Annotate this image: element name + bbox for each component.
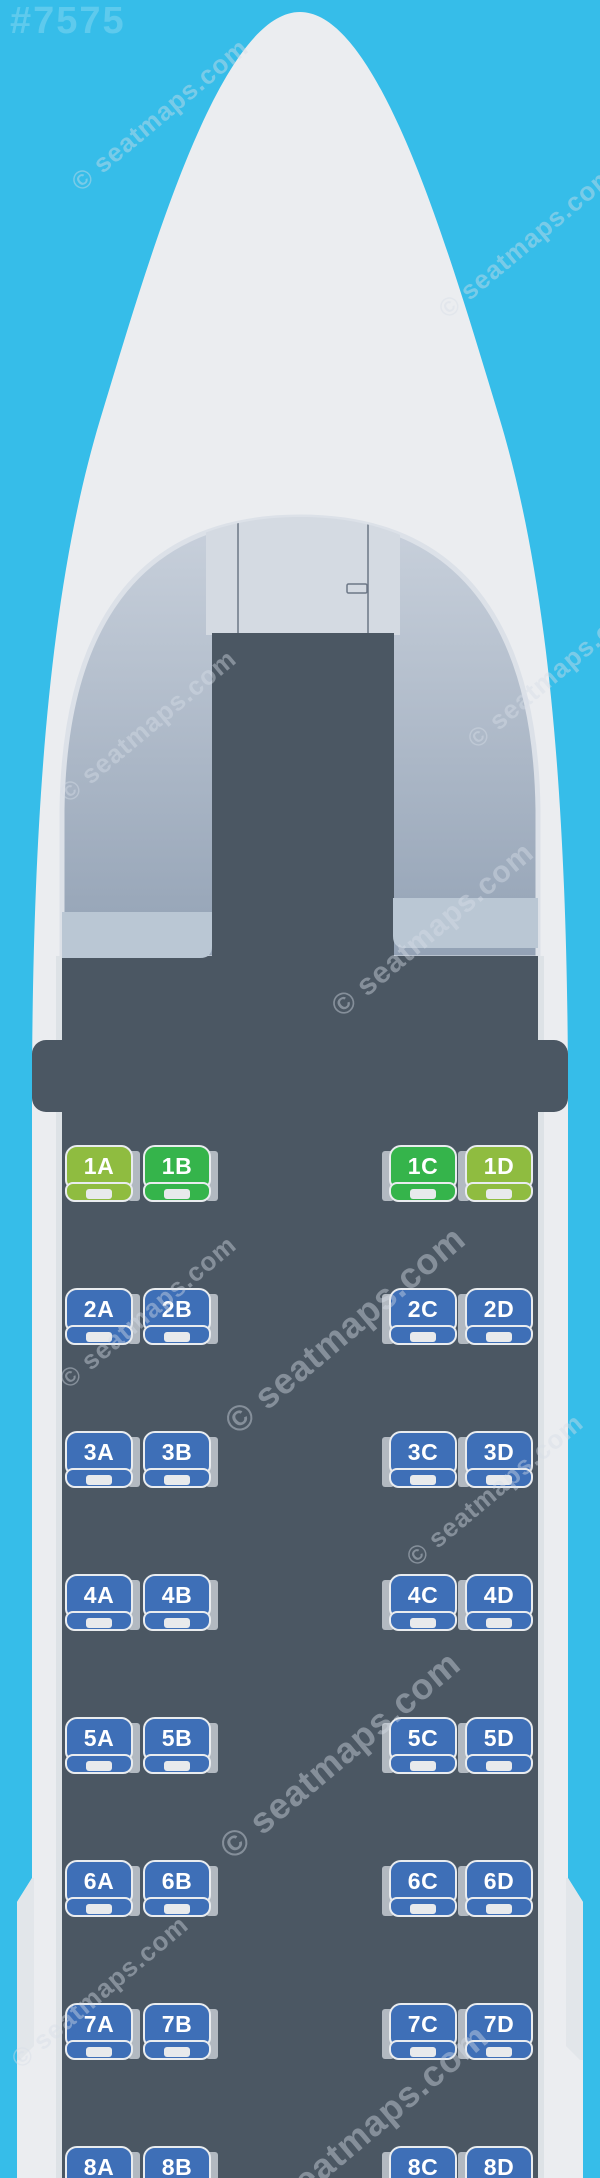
seat-3B[interactable]: 3B (143, 1431, 211, 1488)
seat-belt-notch (164, 1618, 190, 1628)
seat-2C[interactable]: 2C (389, 1288, 457, 1345)
seat-7B[interactable]: 7B (143, 2003, 211, 2060)
seatmap-canvas: 1A1B1C1D2A2B2C2D3A3B3C3D4A4B4C4D5A5B5C5D… (0, 0, 600, 2178)
seat-label: 6B (143, 1860, 211, 1903)
seat-label: 8B (143, 2146, 211, 2178)
seat-label: 1A (65, 1145, 133, 1188)
seat-belt-notch (164, 1761, 190, 1771)
seat-label: 2D (465, 1288, 533, 1331)
seat-1A[interactable]: 1A (65, 1145, 133, 1202)
seat-2A[interactable]: 2A (65, 1288, 133, 1345)
seat-belt-notch (86, 1189, 112, 1199)
seat-belt-notch (410, 1904, 436, 1914)
seat-belt-notch (164, 1332, 190, 1342)
seat-label: 2C (389, 1288, 457, 1331)
seat-8D[interactable]: 8D (465, 2146, 533, 2178)
seat-belt-notch (486, 1761, 512, 1771)
seat-3D[interactable]: 3D (465, 1431, 533, 1488)
seat-belt-notch (410, 1618, 436, 1628)
seat-5C[interactable]: 5C (389, 1717, 457, 1774)
seat-4C[interactable]: 4C (389, 1574, 457, 1631)
seat-belt-notch (486, 1189, 512, 1199)
seat-label: 4C (389, 1574, 457, 1617)
seat-belt-notch (410, 1761, 436, 1771)
seat-4A[interactable]: 4A (65, 1574, 133, 1631)
seat-belt-notch (164, 2047, 190, 2057)
seat-label: 1D (465, 1145, 533, 1188)
seat-label: 5A (65, 1717, 133, 1760)
seat-label: 7B (143, 2003, 211, 2046)
seat-label: 8A (65, 2146, 133, 2178)
seat-8A[interactable]: 8A (65, 2146, 133, 2178)
seat-4B[interactable]: 4B (143, 1574, 211, 1631)
seat-label: 4A (65, 1574, 133, 1617)
seat-6D[interactable]: 6D (465, 1860, 533, 1917)
seat-label: 4D (465, 1574, 533, 1617)
seat-5A[interactable]: 5A (65, 1717, 133, 1774)
seat-belt-notch (486, 1618, 512, 1628)
seat-2D[interactable]: 2D (465, 1288, 533, 1345)
seat-belt-notch (486, 1332, 512, 1342)
seat-2B[interactable]: 2B (143, 1288, 211, 1345)
seat-label: 1B (143, 1145, 211, 1188)
seat-label: 7A (65, 2003, 133, 2046)
seat-belt-notch (86, 1904, 112, 1914)
seat-label: 3B (143, 1431, 211, 1474)
seat-1B[interactable]: 1B (143, 1145, 211, 1202)
seat-label: 8D (465, 2146, 533, 2178)
seat-7C[interactable]: 7C (389, 2003, 457, 2060)
seat-belt-notch (86, 2047, 112, 2057)
seat-6A[interactable]: 6A (65, 1860, 133, 1917)
seat-1D[interactable]: 1D (465, 1145, 533, 1202)
seat-label: 5C (389, 1717, 457, 1760)
seat-label: 5D (465, 1717, 533, 1760)
seat-belt-notch (410, 1189, 436, 1199)
map-id-label: #7575 (10, 0, 126, 43)
seat-3C[interactable]: 3C (389, 1431, 457, 1488)
seat-belt-notch (410, 1332, 436, 1342)
seat-5B[interactable]: 5B (143, 1717, 211, 1774)
seat-belt-notch (86, 1332, 112, 1342)
seat-belt-notch (86, 1618, 112, 1628)
seat-belt-notch (164, 1189, 190, 1199)
seat-label: 6D (465, 1860, 533, 1903)
seat-6C[interactable]: 6C (389, 1860, 457, 1917)
seat-label: 7D (465, 2003, 533, 2046)
seat-6B[interactable]: 6B (143, 1860, 211, 1917)
seat-label: 2A (65, 1288, 133, 1331)
seat-label: 6A (65, 1860, 133, 1903)
seat-belt-notch (410, 1475, 436, 1485)
seat-label: 7C (389, 2003, 457, 2046)
seat-belt-notch (410, 2047, 436, 2057)
seat-7A[interactable]: 7A (65, 2003, 133, 2060)
seat-label: 3C (389, 1431, 457, 1474)
seat-8B[interactable]: 8B (143, 2146, 211, 2178)
seat-belt-notch (86, 1475, 112, 1485)
seat-belt-notch (486, 2047, 512, 2057)
seat-7D[interactable]: 7D (465, 2003, 533, 2060)
seat-belt-notch (486, 1475, 512, 1485)
seat-grid: 1A1B1C1D2A2B2C2D3A3B3C3D4A4B4C4D5A5B5C5D… (0, 0, 600, 2178)
seat-4D[interactable]: 4D (465, 1574, 533, 1631)
seat-1C[interactable]: 1C (389, 1145, 457, 1202)
seat-5D[interactable]: 5D (465, 1717, 533, 1774)
seat-label: 8C (389, 2146, 457, 2178)
seat-label: 1C (389, 1145, 457, 1188)
seat-label: 3D (465, 1431, 533, 1474)
seat-belt-notch (486, 1904, 512, 1914)
seat-label: 4B (143, 1574, 211, 1617)
seat-3A[interactable]: 3A (65, 1431, 133, 1488)
seat-label: 2B (143, 1288, 211, 1331)
seat-8C[interactable]: 8C (389, 2146, 457, 2178)
seat-label: 6C (389, 1860, 457, 1903)
seat-belt-notch (164, 1904, 190, 1914)
seat-belt-notch (86, 1761, 112, 1771)
seat-label: 5B (143, 1717, 211, 1760)
seat-label: 3A (65, 1431, 133, 1474)
seat-belt-notch (164, 1475, 190, 1485)
